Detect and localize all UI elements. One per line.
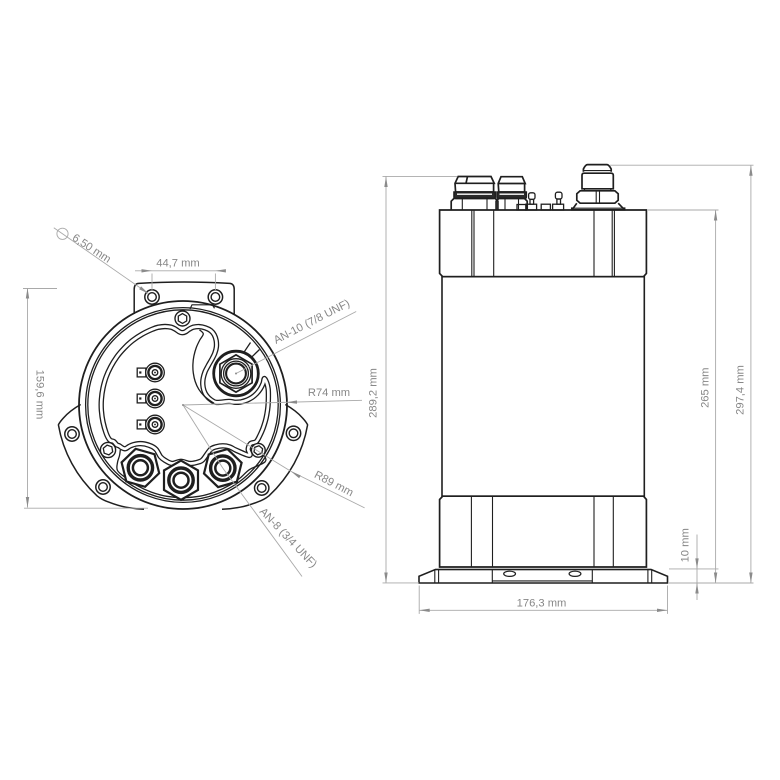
svg-text:176,3 mm: 176,3 mm: [517, 598, 567, 610]
svg-text:R74 mm: R74 mm: [308, 387, 350, 399]
svg-text:159,6 mm: 159,6 mm: [34, 370, 46, 420]
svg-text:44,7 mm: 44,7 mm: [156, 258, 200, 270]
svg-text:10 mm: 10 mm: [680, 528, 692, 562]
svg-text:289,2 mm: 289,2 mm: [368, 368, 380, 418]
svg-text:297,4 mm: 297,4 mm: [735, 365, 747, 415]
svg-text:265 mm: 265 mm: [700, 367, 712, 407]
